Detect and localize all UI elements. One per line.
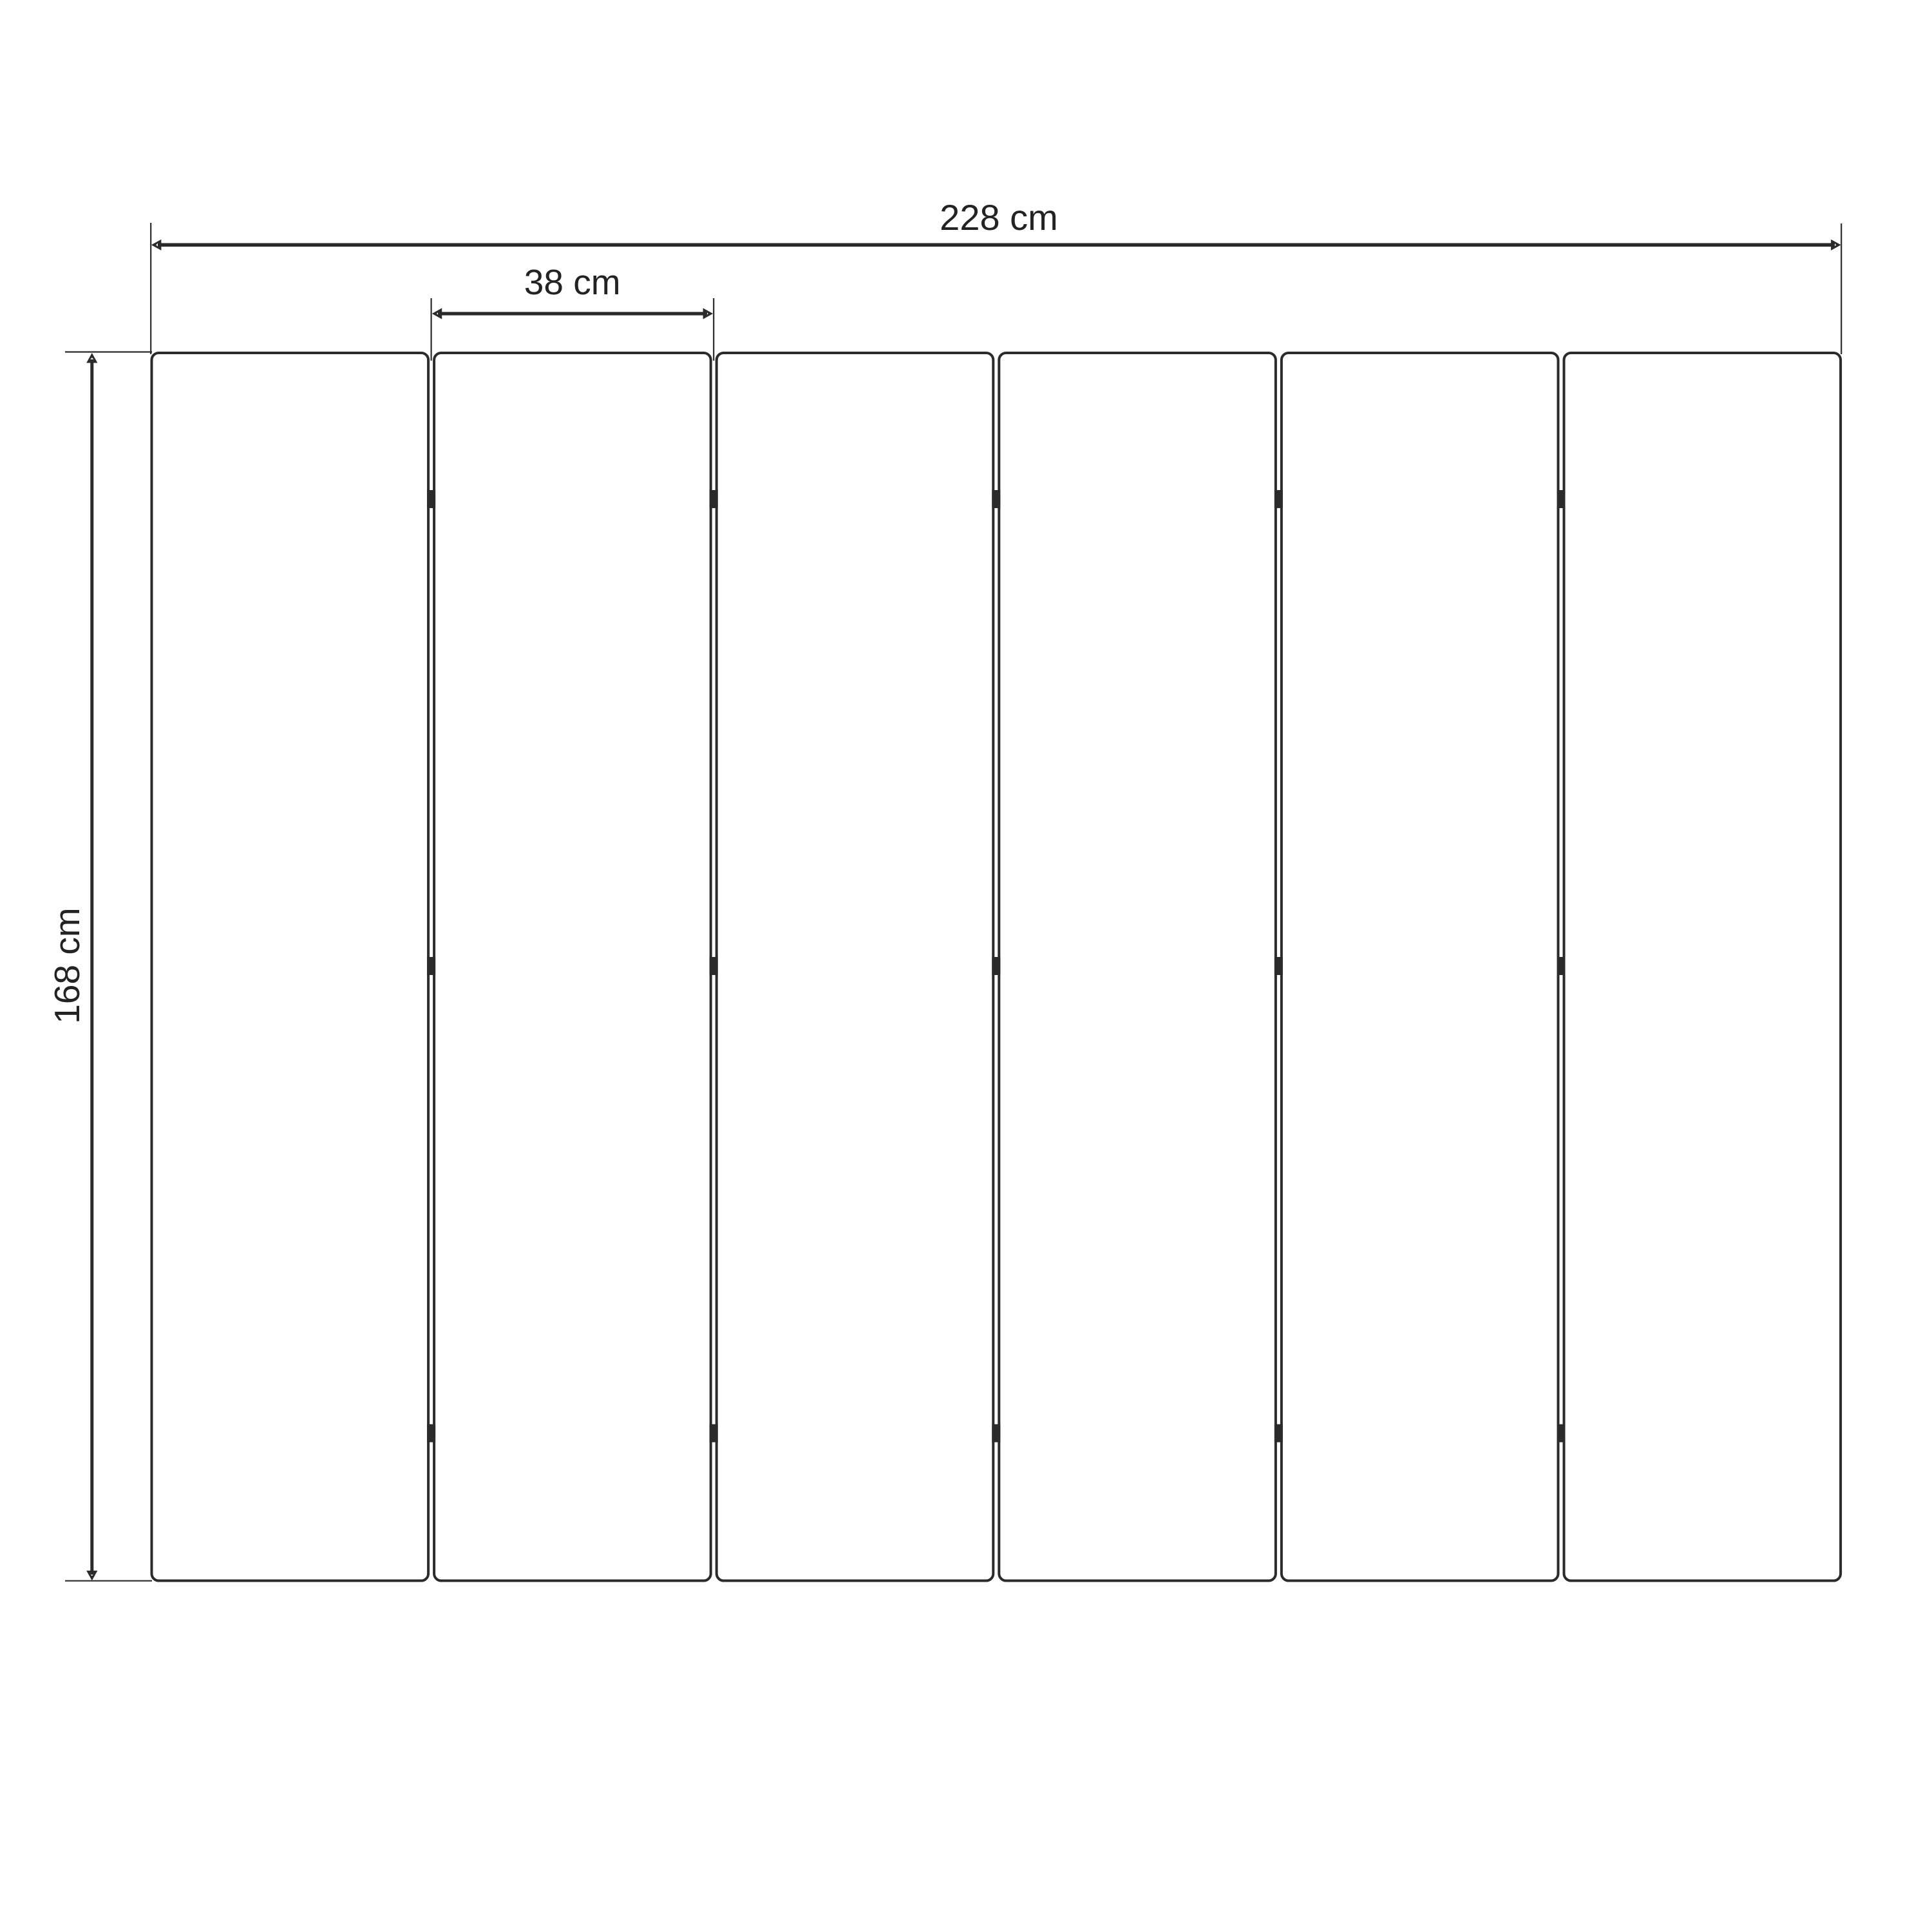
svg-text:38 cm: 38 cm (524, 262, 621, 302)
svg-text:168 cm: 168 cm (47, 907, 87, 1023)
svg-text:228 cm: 228 cm (940, 197, 1058, 238)
